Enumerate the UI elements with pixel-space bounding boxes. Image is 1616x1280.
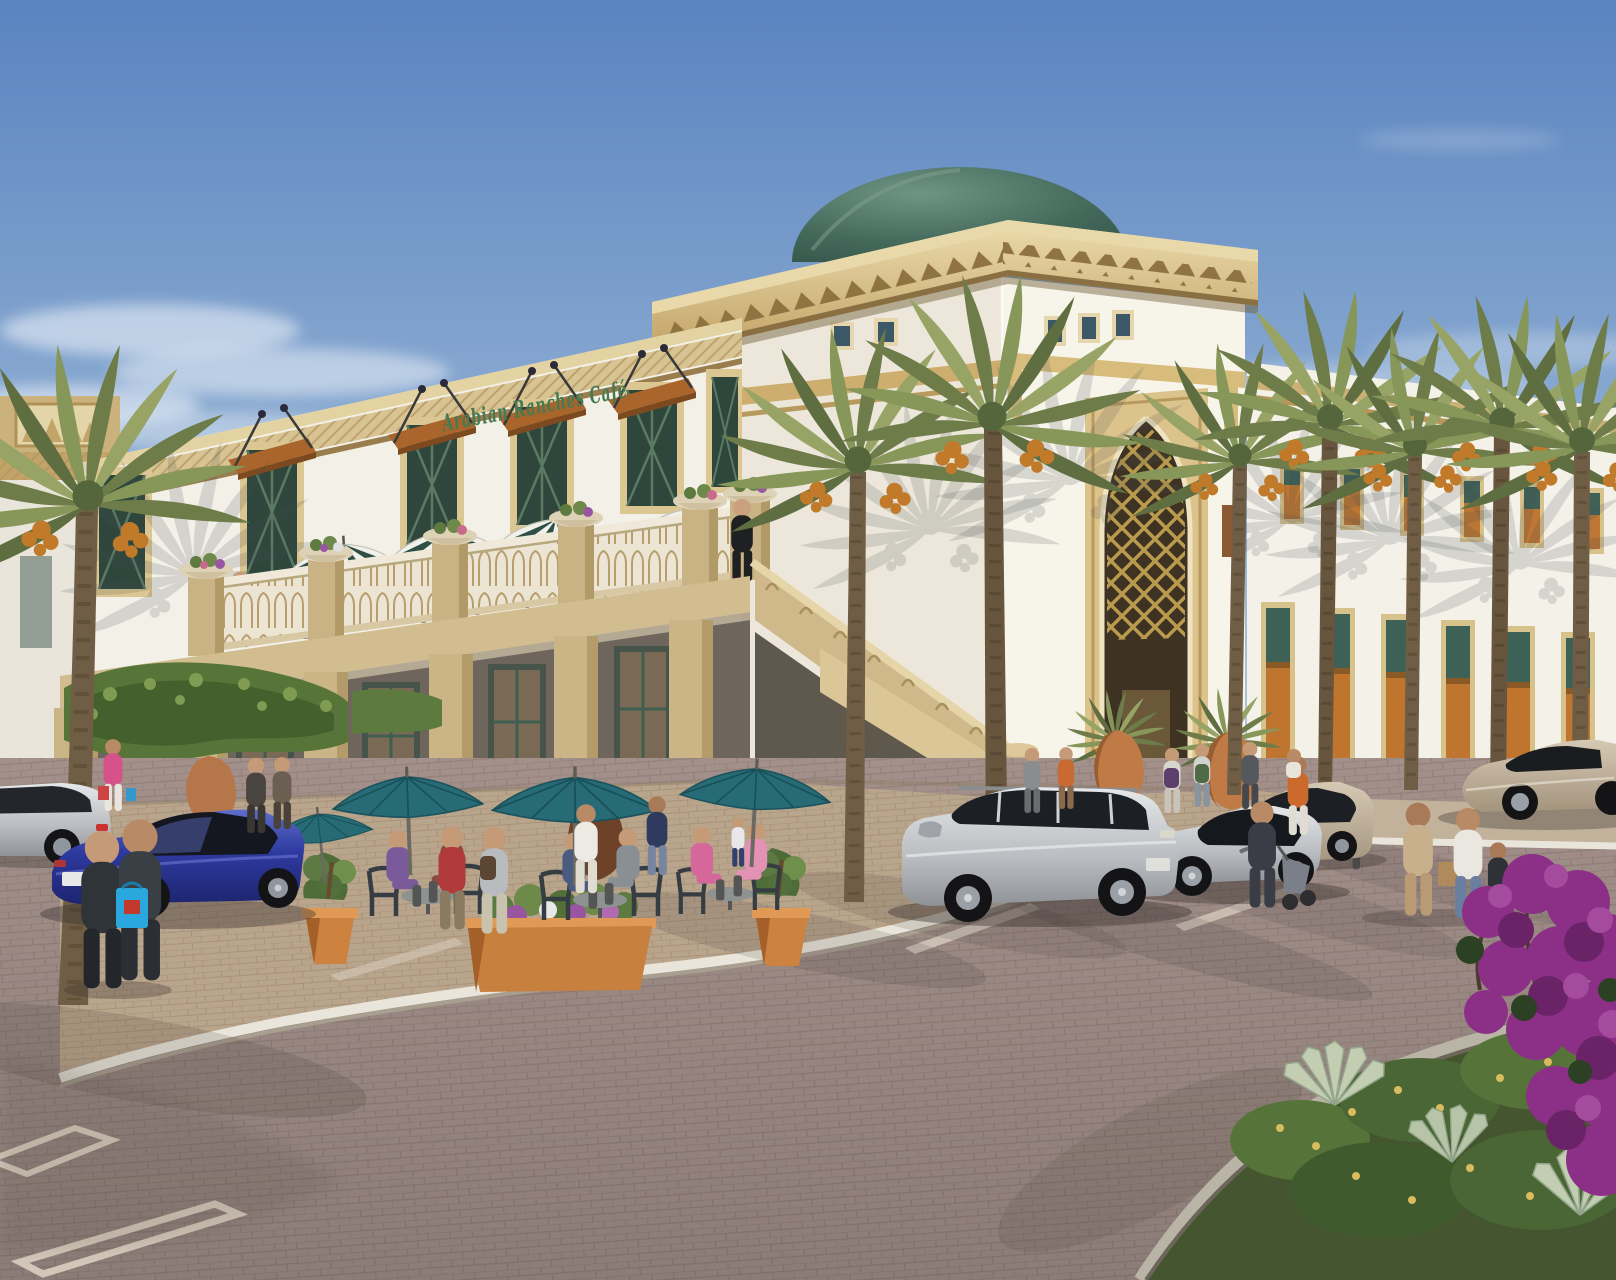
shopping-bag-blue: [116, 883, 148, 928]
rendering-canvas: Arabian Ranches Café: [0, 0, 1616, 1280]
scene-svg: Arabian Ranches Café: [0, 0, 1616, 1280]
